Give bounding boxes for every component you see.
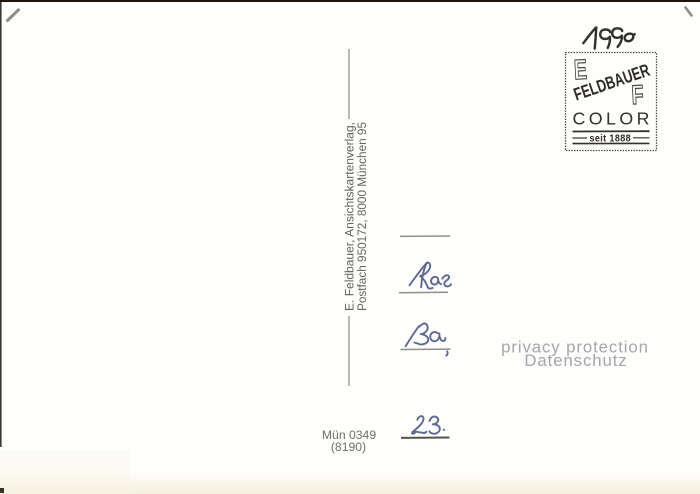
svg-text:COLOR: COLOR [573,109,650,129]
svg-text:(8190): (8190) [331,440,366,454]
svg-text:Datenschutz: Datenschutz [524,351,627,370]
svg-text:Postfach 950172, 8000 München: Postfach 950172, 8000 München 95 [355,122,369,311]
